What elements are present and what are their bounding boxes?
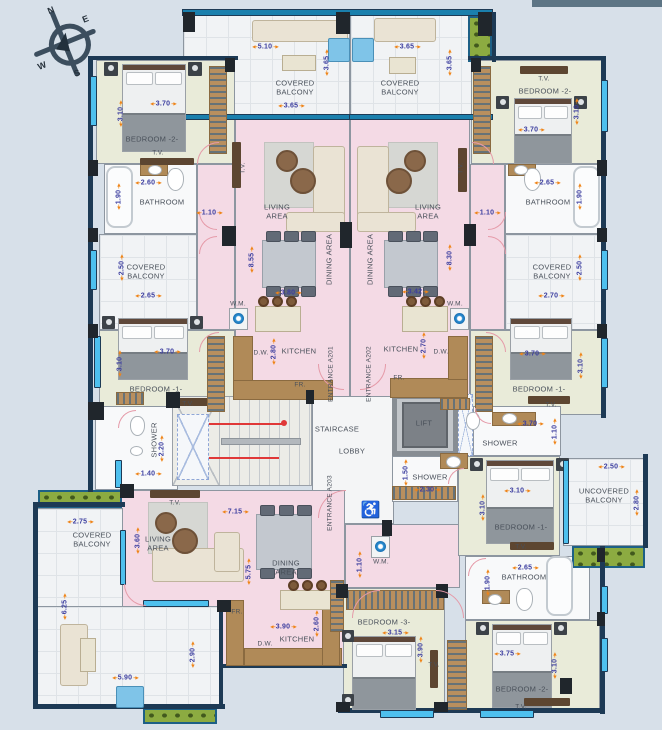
dimension-label: 6.25 [62,594,69,619]
dimension-label: 2.70 [421,333,428,358]
floor-plan-page: N E S W 5.103.653.653.653.653.703.103.70… [0,0,662,730]
island [280,590,336,610]
label-dishwasher: D.W. [433,348,448,355]
structural-column [560,678,572,694]
dimension-label: 2.60 [135,180,160,187]
structural-column [88,228,98,242]
window [94,336,101,388]
dimension-label: 8.30 [447,245,454,270]
basin [446,456,461,468]
structural-column [222,226,236,246]
dimension-label: 3.70 [519,351,544,358]
structural-column [225,58,235,72]
teal-wall [350,115,492,119]
label-bathroom: BATHROOM [526,199,571,208]
washing-machine [450,308,469,330]
structural-column [597,612,605,626]
dimension-label: 3.65 [324,50,331,75]
sofa [374,18,436,42]
label-tv: T.V. [182,400,194,407]
dimension-label: 3.10 [574,99,581,124]
stool [258,296,269,307]
label-entrance-a202: ENTRANCE A202 [365,346,372,402]
label-washing-machine: W.M. [230,300,246,307]
mat [328,38,350,62]
label-covered-balcony: COVERED BALCONY [521,263,583,280]
basin [514,165,528,175]
label-tv: T.V. [152,149,164,156]
stool [302,580,313,591]
wardrobe [473,66,491,154]
wall [492,12,496,62]
wall [468,56,605,60]
sofa [214,532,240,572]
dimension-label: 3.70 [154,349,179,356]
label-shower: SHOWER [482,440,517,449]
dimension-label: 3.10 [480,495,487,520]
toilet [167,168,184,191]
bed [510,318,572,380]
shaft [177,414,209,480]
dimension-label: 5.90 [112,675,137,682]
dimension-label: 3.42 [402,289,427,296]
wall [33,502,38,708]
label-bedroom-2: BEDROOM -2- [519,88,572,97]
label-covered-balcony: COVERED BALCONY [61,531,123,548]
label-tv: T.V. [545,401,557,408]
window [601,338,608,388]
chairc [155,512,177,534]
label-bathroom: BATHROOM [140,199,185,208]
label-bedroom-1: BEDROOM -1- [495,524,548,533]
mat [352,38,374,62]
label-covered-balcony: COVERED BALCONY [369,79,431,96]
dimension-label: 1.90 [116,184,123,209]
chairc [276,150,298,172]
dimension-label: 3.80 [275,290,300,297]
nstand [470,458,483,471]
dimension-label: 3.10 [578,353,585,378]
dimension-label: 3.70 [150,101,175,108]
nstand [190,316,203,329]
label-tv: T.V. [428,661,440,668]
dimension-label: 5.10 [252,44,277,51]
dimension-label: 1.90 [577,184,584,209]
dimension-label: 2.50 [598,464,623,471]
counter [233,380,333,400]
structural-column [120,484,134,498]
mat [116,686,144,708]
structural-column [183,12,195,32]
stool [420,296,431,307]
planter-right [572,546,645,568]
nstand [496,96,509,109]
counter [448,336,468,380]
structural-column [382,520,392,536]
structural-column [217,600,231,612]
label-tv: T.V. [239,162,246,174]
structural-column [434,702,448,712]
dimension-label: 1.10 [357,552,364,577]
label-dishwasher: D.W. [257,640,272,647]
label-tv: T.V. [515,703,527,710]
stool [286,296,297,307]
dimension-label: 1.10 [474,210,499,217]
dimension-label: 3.10 [552,653,559,678]
wall [33,502,125,507]
label-entrance-a201: ENTRANCE A201 [327,346,334,402]
nstand [342,630,354,642]
stool [316,580,327,591]
label-bedroom-3: BEDROOM -3- [358,619,411,628]
dimension-label: 3.75 [494,651,519,658]
dimension-label: 2.90 [190,642,197,667]
label-tv: T.V. [538,75,550,82]
tvunit [430,650,438,688]
dimension-label: 1.10 [552,419,559,444]
door-swing-arc [436,590,464,618]
dimension-label: 3.90 [270,624,295,631]
structural-column [478,12,492,36]
balcony-mid-right [505,234,605,330]
chairc [290,168,316,194]
label-washing-machine: W.M. [447,300,463,307]
label-entrance-a203: ENTRANCE A203 [326,475,333,531]
stool [288,580,299,591]
chairc [404,150,426,172]
structural-column [464,224,476,246]
island [282,55,316,71]
structural-column [306,390,314,404]
dimension-label: 3.65 [447,50,454,75]
label-uncovered-balcony: UNCOVERED BALCONY [571,487,637,504]
dimension-label: 3.10 [117,351,124,376]
structural-column [597,548,605,562]
window [380,710,434,718]
label-kitchen: KITCHEN [282,348,317,357]
dining-table [262,240,316,288]
label-dining-area: DINING AREA [263,559,309,576]
nstand [104,62,118,76]
tvunit [140,158,194,165]
structural-column [597,160,607,176]
window [601,80,608,132]
dimension-label: 2.80 [271,339,278,364]
basin [502,413,517,424]
washing-machine [371,536,390,558]
window [90,76,97,126]
nstand [188,62,202,76]
floor-plan-canvas: 5.103.653.653.653.653.703.103.703.102.60… [0,0,662,730]
bathtub [546,556,573,616]
planter-bottom [143,708,217,724]
wall [219,604,223,706]
dimension-label: 1.40 [135,471,160,478]
dimension-label: 3.10 [118,101,125,126]
window [601,586,608,614]
label-living-area: LIVING AREA [135,535,181,552]
tvunit [520,66,568,74]
label-kitchen: KITCHEN [280,636,315,645]
island [389,57,416,74]
label-covered-balcony: COVERED BALCONY [115,263,177,280]
structural-column [88,324,98,338]
structural-column [597,324,607,338]
basin [130,446,143,456]
dimension-label: 8.55 [249,247,256,272]
label-lift: LIFT [416,420,432,429]
label-lobby: LOBBY [339,448,365,457]
dimension-label: 2.65 [512,565,537,572]
label-fridge: FR. [231,608,242,615]
dimension-label: 3.70 [518,127,543,134]
dimension-label: 3.10 [504,488,529,495]
nstand [554,622,567,635]
structural-column [166,392,180,408]
counter [233,336,253,384]
window [143,600,209,607]
dimension-label: 5.75 [246,559,253,584]
wheelchair-icon: ♿ [361,502,381,520]
label-shower: SHOWER [412,474,447,483]
dimension-label: 2.65 [534,180,559,187]
label-tv: T.V. [515,543,527,550]
label-dishwasher: D.W. [253,349,268,356]
structural-column [88,402,104,420]
dimension-label: 3.65 [278,103,303,110]
label-living-area: LIVING AREA [254,203,300,220]
label-bedroom-2: BEDROOM -2- [126,136,179,145]
label-living-area: LIVING AREA [405,203,451,220]
window [480,710,534,718]
label-bedroom-1: BEDROOM -1- [130,386,183,395]
label-shower: SHOWER [151,422,160,457]
dimension-label: 3.15 [382,630,407,637]
structural-column [471,58,481,72]
chairc [386,168,412,194]
dimension-label: 2.30 [414,487,439,494]
washing-machine [229,308,248,330]
stool [434,296,445,307]
window [601,638,608,672]
label-tv: T.V. [457,162,464,174]
label-washing-machine: W.M. [373,558,389,565]
wardrobe [440,398,470,410]
structural-column [597,228,607,242]
window [90,250,97,290]
wardrobe [209,66,227,154]
label-tv: T.V. [169,499,181,506]
nstand [102,316,115,329]
dimension-label: 7.15 [222,509,247,516]
label-dining-area: DINING AREA [326,239,335,285]
basin [148,165,162,175]
dimension-label: 3.90 [418,637,425,662]
window [563,460,569,544]
tvunit [150,490,200,498]
bed [352,636,416,710]
structural-column [88,160,98,176]
wardrobe [447,640,467,710]
label-bedroom-1: BEDROOM -1- [513,386,566,395]
dimension-label: 2.75 [67,519,92,526]
island [80,638,96,672]
dining-table [384,240,438,288]
dimension-label: 2.70 [538,293,563,300]
stool [272,296,283,307]
nstand [476,622,489,635]
wall [92,56,238,60]
wall [643,454,648,548]
tvunit [524,698,570,706]
dimension-label: 2.60 [314,611,321,636]
label-bedroom-2: BEDROOM -2- [496,686,549,695]
island [402,306,448,332]
island [255,306,301,332]
label-fridge: FR. [294,381,305,388]
label-dining-area: DINING AREA [367,239,376,285]
label-covered-balcony: COVERED BALCONY [264,79,326,96]
window [601,250,608,290]
label-kitchen: KITCHEN [384,346,419,355]
label-staircase: STAIRCASE [315,426,359,435]
structural-column [336,12,350,34]
structural-column [336,702,350,712]
dimension-label: 3.65 [394,44,419,51]
dimension-label: 1.50 [403,460,410,485]
label-fridge: FR. [393,374,404,381]
wall [600,546,605,714]
dimension-label: 3.70 [517,421,542,428]
stool [406,296,417,307]
basin [488,594,502,605]
structural-column [340,222,352,248]
dimension-label: 2.20 [159,436,166,461]
dimension-label: 2.65 [135,293,160,300]
dimension-label: 1.10 [196,210,221,217]
toilet [516,588,533,611]
structural-column [336,584,348,598]
dimension-label: 1.90 [485,570,492,595]
bed [492,624,552,708]
label-bathroom: BATHROOM [502,574,547,583]
